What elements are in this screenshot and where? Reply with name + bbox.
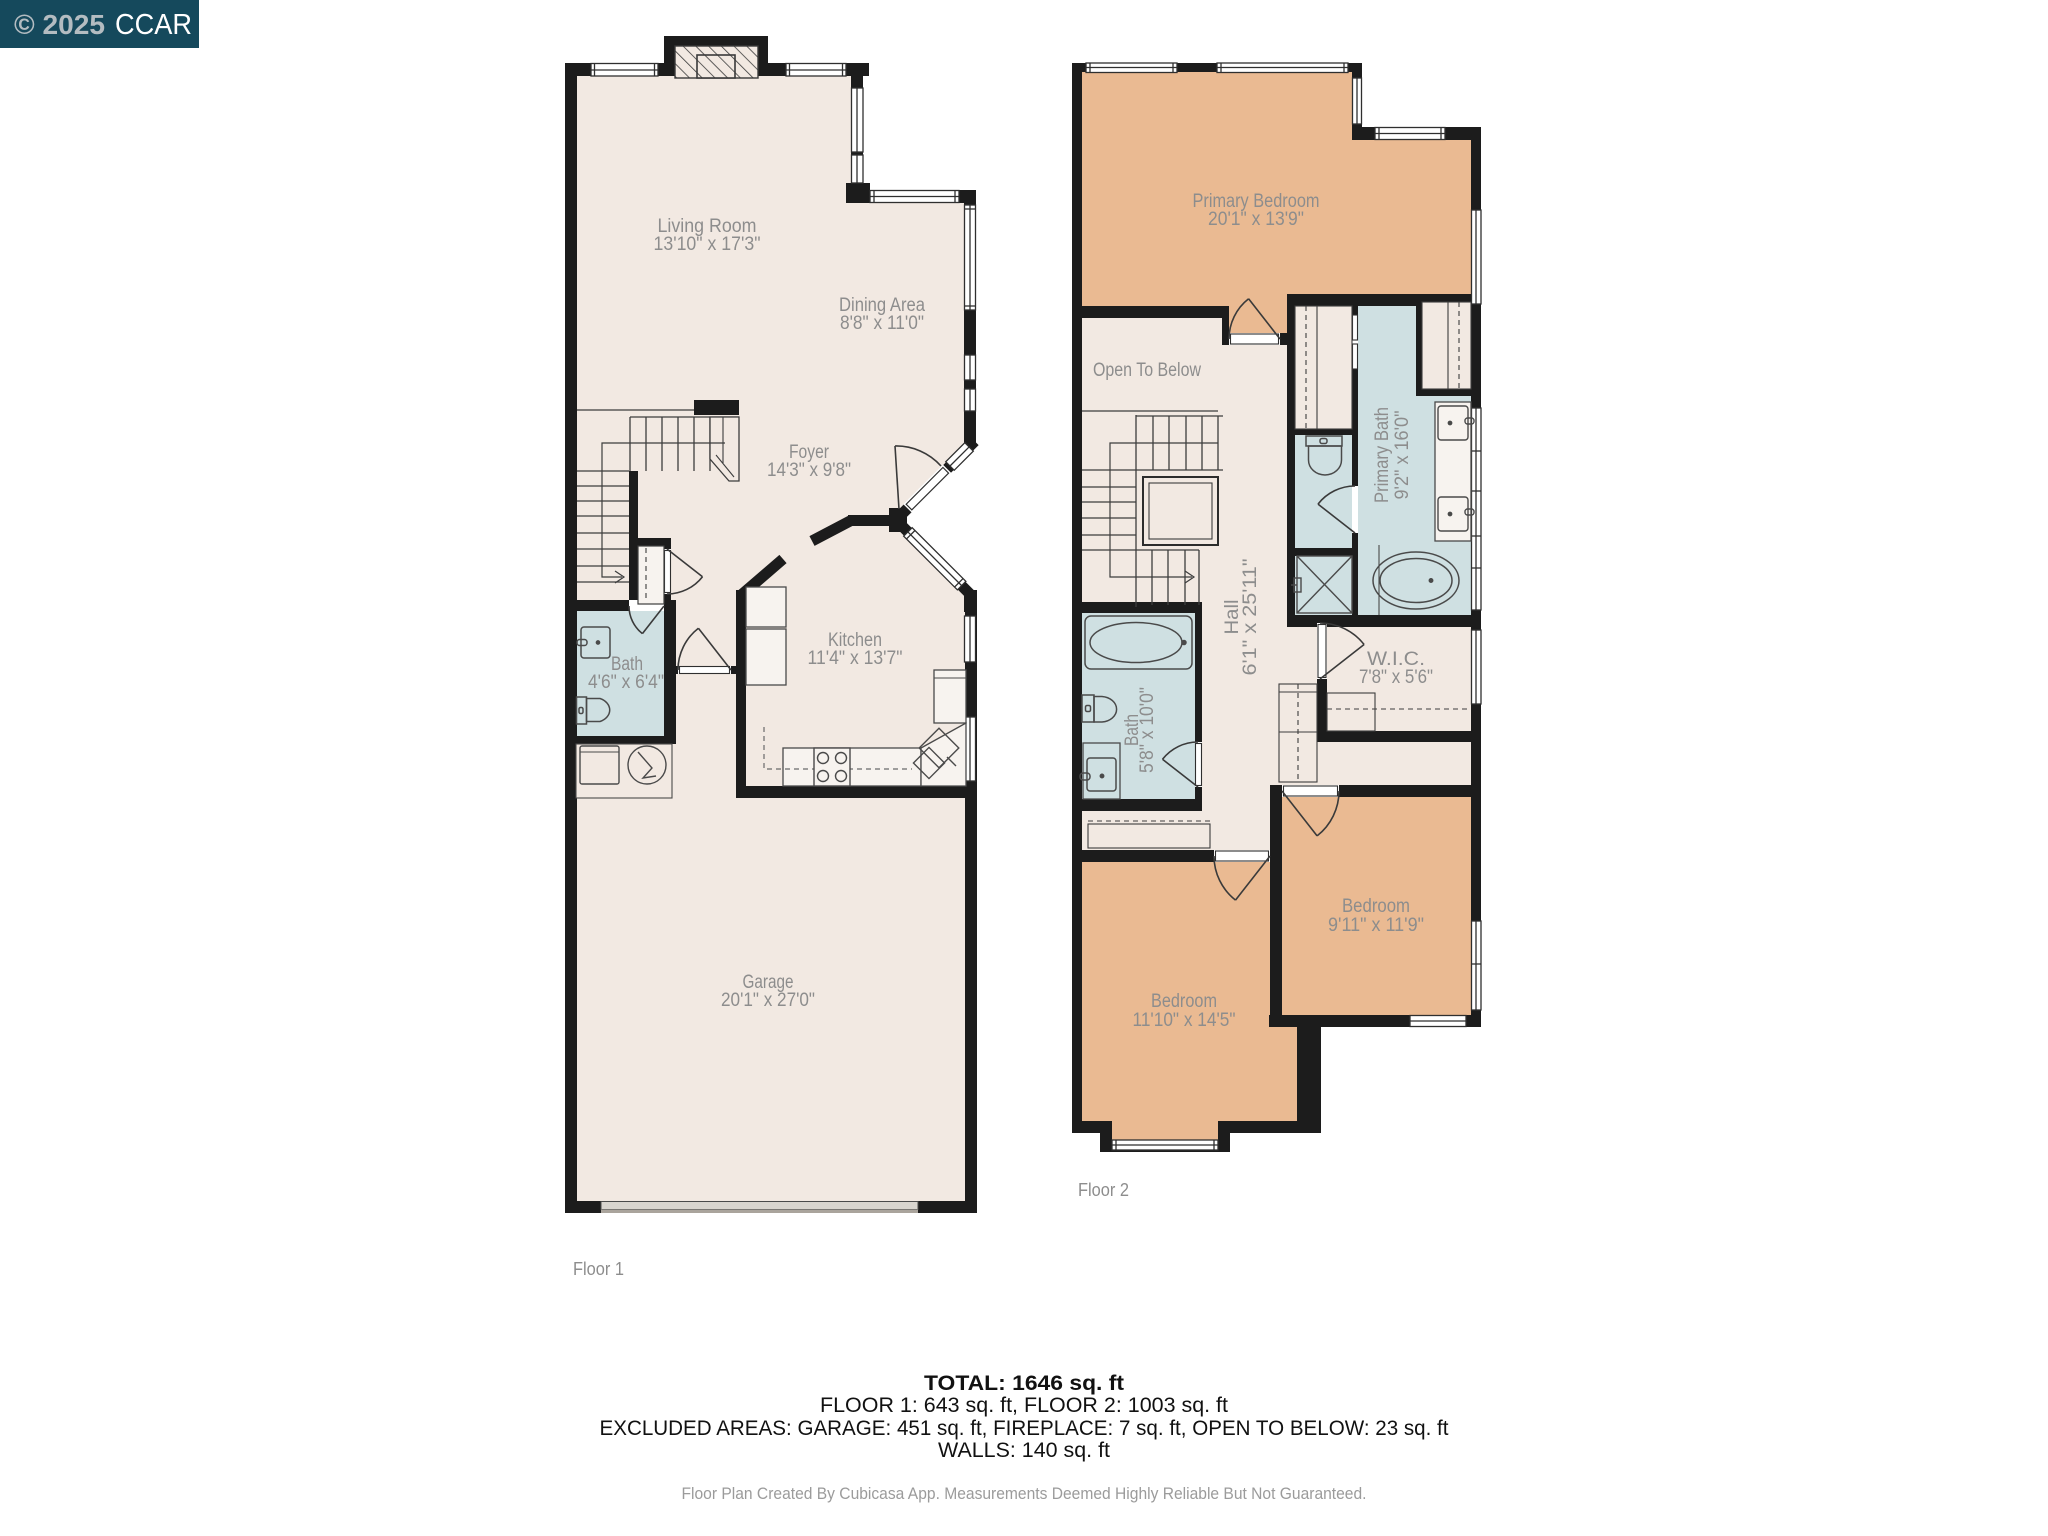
svg-text:20'1" x 27'0": 20'1" x 27'0" bbox=[721, 990, 815, 1011]
svg-text:Primary Bath: Primary Bath bbox=[1372, 407, 1393, 503]
svg-text:TOTAL: 1646 sq. ft: TOTAL: 1646 sq. ft bbox=[924, 1372, 1124, 1395]
svg-text:EXCLUDED AREAS: GARAGE: 451 sq: EXCLUDED AREAS: GARAGE: 451 sq. ft, FIRE… bbox=[600, 1417, 1449, 1440]
svg-text:WALLS: 140 sq. ft: WALLS: 140 sq. ft bbox=[938, 1439, 1110, 1462]
svg-text:7'8" x 5'6": 7'8" x 5'6" bbox=[1359, 667, 1433, 688]
svg-text:11'10" x 14'5": 11'10" x 14'5" bbox=[1133, 1010, 1236, 1031]
svg-text:FLOOR 1: 643 sq. ft, FLOOR 2:: FLOOR 1: 643 sq. ft, FLOOR 2: 1003 sq. f… bbox=[820, 1394, 1228, 1417]
svg-text:© 2025: © 2025 bbox=[14, 9, 105, 40]
svg-text:Bedroom: Bedroom bbox=[1151, 991, 1217, 1012]
svg-text:CCAR: CCAR bbox=[115, 9, 192, 41]
svg-text:Floor 1: Floor 1 bbox=[573, 1259, 624, 1279]
svg-text:9'11" x 11'9": 9'11" x 11'9" bbox=[1328, 915, 1424, 936]
svg-text:Floor Plan Created By Cubicasa: Floor Plan Created By Cubicasa App. Meas… bbox=[682, 1484, 1367, 1503]
svg-text:Bedroom: Bedroom bbox=[1342, 896, 1410, 917]
svg-text:20'1" x 13'9": 20'1" x 13'9" bbox=[1208, 209, 1304, 230]
svg-text:14'3" x 9'8": 14'3" x 9'8" bbox=[767, 460, 851, 481]
svg-text:Open To Below: Open To Below bbox=[1093, 360, 1201, 381]
svg-text:4'6" x 6'4": 4'6" x 6'4" bbox=[588, 672, 664, 693]
svg-text:9'2" x 16'0": 9'2" x 16'0" bbox=[1392, 411, 1413, 500]
svg-text:8'8" x 11'0": 8'8" x 11'0" bbox=[840, 313, 924, 334]
svg-text:Floor 2: Floor 2 bbox=[1078, 1180, 1129, 1200]
svg-text:13'10" x 17'3": 13'10" x 17'3" bbox=[654, 234, 761, 255]
svg-text:6'1" x 25'11": 6'1" x 25'11" bbox=[1240, 559, 1261, 676]
svg-text:11'4" x 13'7": 11'4" x 13'7" bbox=[808, 648, 903, 669]
svg-text:5'8" x 10'0": 5'8" x 10'0" bbox=[1137, 687, 1158, 773]
